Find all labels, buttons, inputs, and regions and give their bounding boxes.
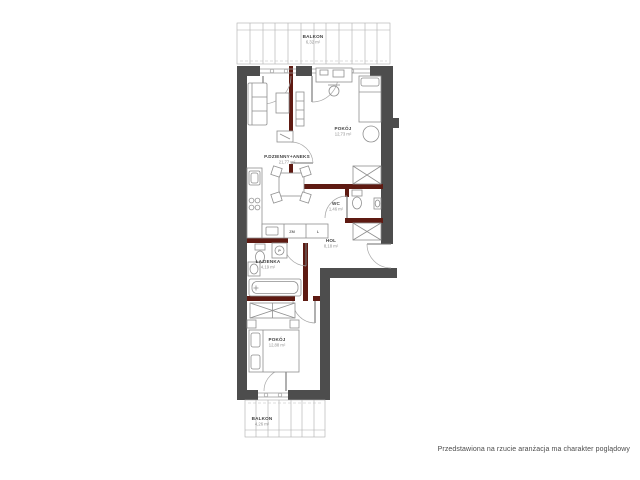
washer-label: P: [278, 248, 281, 253]
coffee-table-icon: [276, 93, 289, 113]
room-label-balkon-top: BALKON: [303, 34, 324, 39]
room-label-wc: WC: [332, 201, 341, 206]
disclaimer-text: Przedstawiona na rzucie aranżacja ma cha…: [438, 446, 630, 453]
floorplan-canvas: ZM L P: [0, 0, 640, 480]
tv-bench-icon: [277, 131, 293, 142]
nightstand-icon-right: [290, 320, 299, 328]
wardrobe-icon-hall: [353, 223, 381, 240]
room-area-wc: 1,46 m²: [329, 207, 344, 212]
room-area-hol: 8,18 m²: [324, 244, 339, 249]
nightstand-icon-left: [247, 320, 256, 328]
dishwasher-label: ZM: [289, 229, 295, 234]
bookshelf-icon: [296, 92, 304, 126]
toilet-icon-wc: [352, 190, 362, 209]
wardrobe-icon-bottom: [250, 303, 295, 318]
room-label-salon: P.DZIENNY+ANEKS: [264, 154, 310, 159]
room-label-pokoj-bottom: POKÓJ: [268, 335, 285, 342]
room-area-balkon-bottom: 4,26 m²: [255, 422, 270, 427]
wardrobe-icon-bedroom: [353, 166, 381, 184]
room-area-pokoj-top: 12,73 m²: [335, 132, 352, 137]
sofa-icon: [248, 83, 267, 125]
washbasin-icon-wc: [374, 198, 381, 209]
room-area-balkon-top: 6,32 m²: [306, 40, 321, 45]
room-label-lazienka: ŁAZIENKA: [256, 259, 281, 264]
room-area-lazienka: 4,19 m²: [261, 265, 276, 270]
room-label-pokoj-top: POKÓJ: [334, 124, 351, 131]
pouf-icon: [363, 126, 379, 142]
desk-icon: [316, 68, 352, 82]
bathtub-icon: [249, 279, 301, 296]
room-label-hol: HOL: [326, 238, 336, 243]
floorplan-svg: ZM L P: [0, 0, 640, 480]
room-label-balkon-bottom: BALKON: [252, 416, 273, 421]
room-area-salon: 21,77 m²: [279, 160, 296, 165]
room-area-pokoj-bottom: 12,88 m²: [269, 343, 286, 348]
washbasin-icon-bathroom: [248, 262, 260, 276]
bed-icon-top: [359, 76, 381, 122]
